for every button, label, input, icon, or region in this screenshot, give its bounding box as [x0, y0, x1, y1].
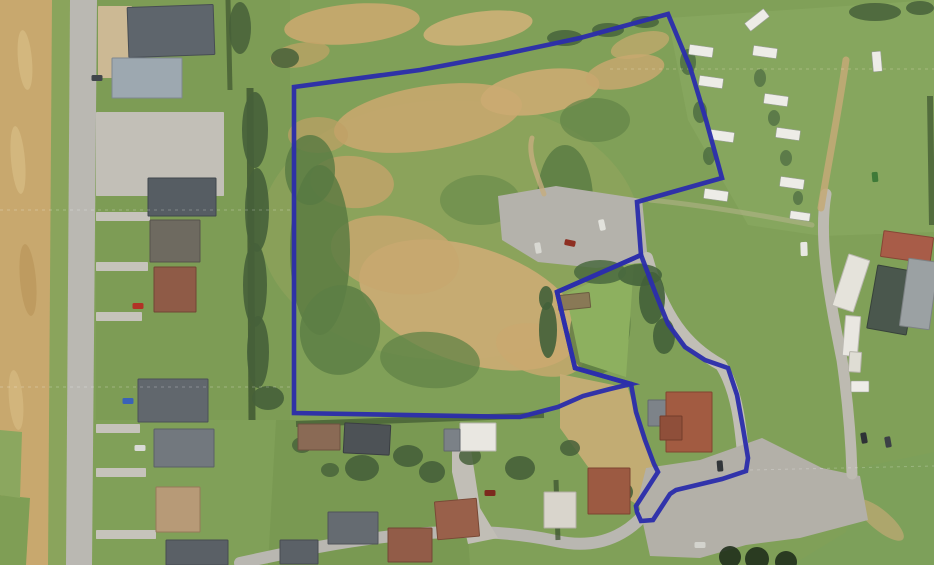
tree-29	[849, 3, 901, 21]
tree-30	[906, 1, 934, 15]
tree-6	[271, 48, 299, 68]
bl-grass	[0, 495, 30, 565]
tree-11	[539, 302, 557, 358]
house	[154, 267, 196, 312]
tree-8	[653, 318, 675, 354]
car-7	[485, 490, 496, 496]
tree-0	[242, 92, 268, 168]
tree-1	[245, 168, 269, 252]
house	[434, 498, 479, 540]
tree-14	[393, 445, 423, 467]
house	[156, 487, 200, 532]
car-9	[800, 242, 807, 256]
road-6	[96, 424, 140, 433]
field-patch-33	[560, 98, 630, 142]
red-roof-house	[588, 468, 630, 514]
tree-4	[252, 386, 284, 410]
house	[388, 528, 432, 562]
large-house	[127, 5, 215, 58]
outbuilding	[298, 424, 340, 450]
road-4	[96, 262, 148, 271]
car-13	[695, 542, 706, 548]
trailer	[842, 315, 860, 356]
tree-15	[419, 461, 445, 483]
road-8	[96, 530, 156, 539]
tree-13	[345, 455, 379, 481]
tree-28	[793, 191, 803, 205]
car-0	[92, 75, 103, 81]
house	[280, 540, 318, 564]
house	[112, 58, 182, 98]
car-10	[872, 172, 879, 182]
garage	[444, 429, 460, 451]
hedgerow-4	[930, 96, 932, 225]
car-2	[123, 398, 134, 404]
house	[166, 540, 228, 565]
house	[150, 220, 200, 262]
road-3	[96, 212, 150, 221]
house	[138, 379, 208, 422]
tree-3	[247, 316, 269, 388]
car-1	[133, 303, 144, 309]
house	[328, 512, 378, 544]
white-house	[460, 423, 496, 451]
farmhouse-wing	[660, 416, 682, 440]
barn	[343, 423, 391, 455]
tree-17	[505, 456, 535, 480]
tree-27	[780, 150, 792, 166]
tree-26	[768, 110, 780, 126]
tree-21	[321, 463, 339, 477]
tree-2	[243, 243, 267, 327]
house	[544, 492, 576, 528]
tree-5	[229, 2, 251, 54]
west-road	[66, 0, 97, 565]
tree-19	[560, 440, 580, 456]
tree-12	[539, 286, 553, 310]
caravan-11	[851, 381, 869, 392]
trailer	[848, 352, 861, 373]
car-8	[717, 460, 724, 471]
bl-grass2	[0, 430, 22, 498]
hedgerow-1	[228, 0, 230, 90]
road-5	[96, 312, 142, 321]
road-7	[96, 468, 146, 477]
car-3	[135, 445, 146, 451]
aerial-map-view[interactable]	[0, 0, 934, 565]
tree-25	[754, 69, 766, 87]
house	[154, 429, 214, 467]
aerial-photo	[0, 0, 934, 565]
